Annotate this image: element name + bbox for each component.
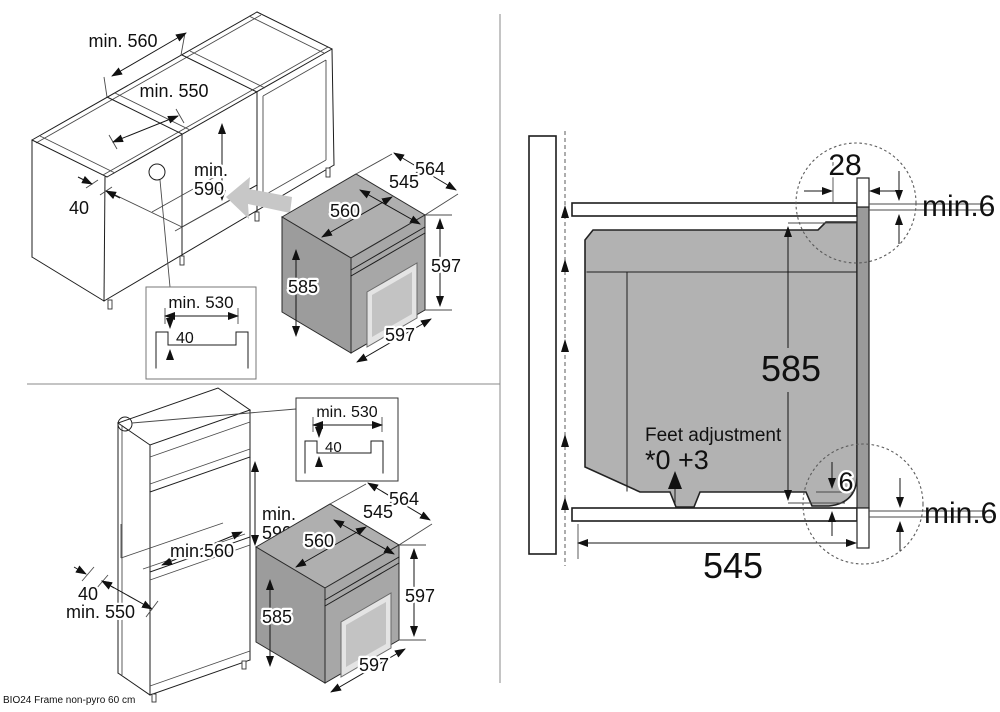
wall-reference-line bbox=[561, 131, 569, 566]
detail-callout-circle bbox=[149, 164, 165, 180]
detail-recess-label: 40 bbox=[176, 330, 194, 347]
dim-top-clearance-label: min.6 bbox=[922, 190, 995, 223]
feet-adjustment-values: *0 +3 bbox=[645, 445, 709, 475]
dim-bottom-clearance: min.6 bbox=[869, 478, 997, 551]
dim-niche-height-label-1: min. bbox=[194, 160, 228, 180]
dim-niche-depth-label: 545 bbox=[703, 545, 763, 586]
dim-width-label: min. 560 bbox=[88, 31, 157, 51]
front-frame-top-tab bbox=[857, 178, 869, 207]
dim-top-clearance: min.6 bbox=[869, 171, 995, 244]
wall-section bbox=[529, 136, 556, 554]
detail-recess-label: 40 bbox=[325, 439, 342, 456]
dim-rail-label: 40 bbox=[78, 584, 98, 604]
detail-width-label: min. 530 bbox=[316, 404, 377, 421]
base-cabinet-panel: min. 560 min. 550 min. 590 40 min. 530 bbox=[32, 12, 461, 379]
oven-height-body-label: 585 bbox=[262, 607, 292, 627]
niche-floor-detail-box: min. 530 40 bbox=[146, 287, 256, 379]
oven-depth-top-label: 545 bbox=[363, 502, 393, 522]
dim-bottom-gap-label: 6 bbox=[838, 467, 853, 497]
dim-depth-label: min. 550 bbox=[66, 602, 135, 622]
dim-niche-height-label-1: min. bbox=[262, 504, 296, 524]
oven-width-front-label: 597 bbox=[359, 655, 389, 675]
installation-diagram-page: min. 560 min. 550 min. 590 40 min. 530 bbox=[0, 0, 1000, 712]
niche-floor-detail-box: min. 530 40 bbox=[296, 398, 398, 481]
footer-note: BIO24 Frame non-pyro 60 cm bbox=[3, 695, 135, 706]
counter-top-section bbox=[572, 203, 857, 216]
dim-bottom-clearance-label: min.6 bbox=[924, 497, 997, 530]
base-cabinet-dimensions: min. 560 min. 550 min. 590 40 bbox=[69, 31, 228, 227]
front-frame-bottom-tab bbox=[857, 508, 869, 548]
oven-height-front-label: 597 bbox=[405, 586, 435, 606]
oven-width-top-label: 560 bbox=[330, 201, 360, 221]
dim-rail-label: 40 bbox=[69, 198, 89, 218]
detail-width-label: min. 530 bbox=[168, 293, 233, 312]
oven-isometric-top: 560 585 564 545 597 597 bbox=[282, 153, 461, 362]
oven-depth-total-label: 564 bbox=[415, 159, 445, 179]
oven-front-frame bbox=[857, 207, 869, 508]
dim-niche-height-label-2: 590 bbox=[194, 179, 224, 199]
dim-front-gap-label: 28 bbox=[828, 149, 861, 182]
dim-body-height-label: 585 bbox=[761, 348, 821, 389]
oven-height-front-label: 597 bbox=[431, 256, 461, 276]
bottom-shelf-section bbox=[572, 508, 857, 521]
oven-height-body-label: 585 bbox=[288, 277, 318, 297]
oven-depth-total-label: 564 bbox=[389, 489, 419, 509]
tall-cabinet-panel: min. 590 min.560 40 min. 550 min. 530 40 bbox=[66, 388, 435, 702]
oven-depth-top-label: 545 bbox=[389, 172, 419, 192]
side-section-panel: 585 Feet adjustment *0 +3 545 28 bbox=[529, 131, 997, 586]
dim-niche-width-label: min.560 bbox=[170, 541, 234, 561]
installation-diagram: min. 560 min. 550 min. 590 40 min. 530 bbox=[0, 0, 1000, 712]
feet-adjustment-title: Feet adjustment bbox=[645, 425, 782, 446]
oven-width-top-label: 560 bbox=[304, 531, 334, 551]
dim-depth-label: min. 550 bbox=[139, 81, 208, 101]
oven-width-front-label: 597 bbox=[385, 325, 415, 345]
dim-niche-depth: 545 bbox=[578, 524, 856, 586]
